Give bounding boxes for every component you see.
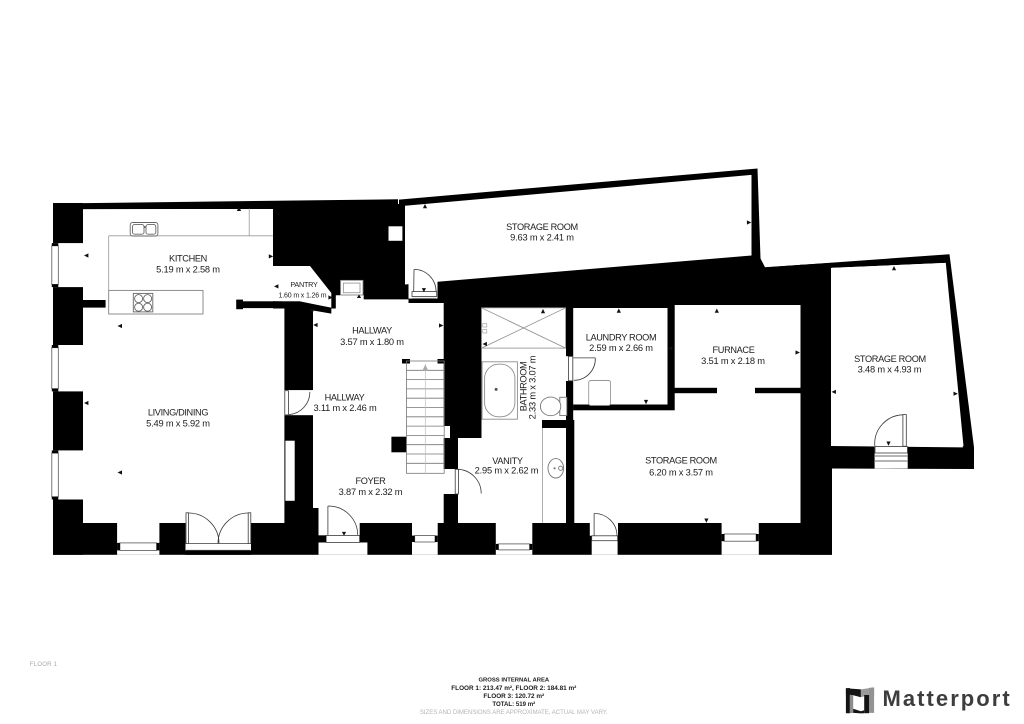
svg-text:9.63 m x 2.41 m: 9.63 m x 2.41 m (510, 233, 574, 243)
svg-text:6.20 m x 3.57 m: 6.20 m x 3.57 m (649, 467, 713, 477)
svg-text:5.49 m x 5.92 m: 5.49 m x 5.92 m (146, 419, 210, 429)
svg-text:HALLWAY: HALLWAY (325, 393, 365, 403)
svg-text:3.87 m x 2.32 m: 3.87 m x 2.32 m (339, 487, 403, 497)
svg-text:LIVING/DINING: LIVING/DINING (148, 408, 208, 418)
svg-text:VANITY: VANITY (492, 456, 523, 466)
svg-text:PANTRY: PANTRY (290, 280, 318, 289)
svg-text:FLOOR 3: 120.72 m²: FLOOR 3: 120.72 m² (483, 693, 544, 700)
svg-text:HALLWAY: HALLWAY (352, 326, 392, 336)
svg-text:2.33 m x 3.07 m: 2.33 m x 3.07 m (528, 355, 538, 419)
svg-text:LAUNDRY ROOM: LAUNDRY ROOM (586, 333, 657, 343)
svg-text:FLOOR 1: 213.47 m², FLOOR 2: 1: FLOOR 1: 213.47 m², FLOOR 2: 184.81 m² (451, 685, 576, 692)
svg-text:STORAGE ROOM: STORAGE ROOM (854, 354, 926, 364)
svg-text:FURNACE: FURNACE (713, 345, 755, 355)
svg-text:3.57 m x 1.80 m: 3.57 m x 1.80 m (340, 337, 404, 347)
svg-text:STORAGE ROOM: STORAGE ROOM (506, 222, 578, 232)
svg-text:3.11 m x 2.46 m: 3.11 m x 2.46 m (314, 403, 377, 413)
svg-text:1.60 m x 1.26 m: 1.60 m x 1.26 m (279, 292, 327, 299)
svg-text:GROSS INTERNAL AREA: GROSS INTERNAL AREA (478, 678, 549, 684)
svg-text:SIZES AND DIMENSIONS ARE APPRO: SIZES AND DIMENSIONS ARE APPROXIMATE, AC… (420, 710, 608, 716)
svg-text:FLOOR 1: FLOOR 1 (30, 661, 58, 668)
svg-text:5.19 m x 2.58 m: 5.19 m x 2.58 m (156, 265, 220, 275)
svg-text:STORAGE ROOM: STORAGE ROOM (645, 456, 717, 466)
svg-text:KITCHEN: KITCHEN (169, 254, 207, 264)
svg-text:2.59 m x 2.66 m: 2.59 m x 2.66 m (589, 343, 653, 353)
svg-text:TOTAL: 519 m²: TOTAL: 519 m² (492, 701, 535, 708)
svg-text:2.95 m x 2.62 m: 2.95 m x 2.62 m (475, 466, 539, 476)
svg-text:3.48 m x 4.93 m: 3.48 m x 4.93 m (858, 365, 922, 375)
svg-text:3.51 m x 2.18 m: 3.51 m x 2.18 m (701, 356, 765, 366)
svg-text:FOYER: FOYER (356, 476, 387, 486)
svg-text:Matterport: Matterport (883, 686, 1012, 711)
